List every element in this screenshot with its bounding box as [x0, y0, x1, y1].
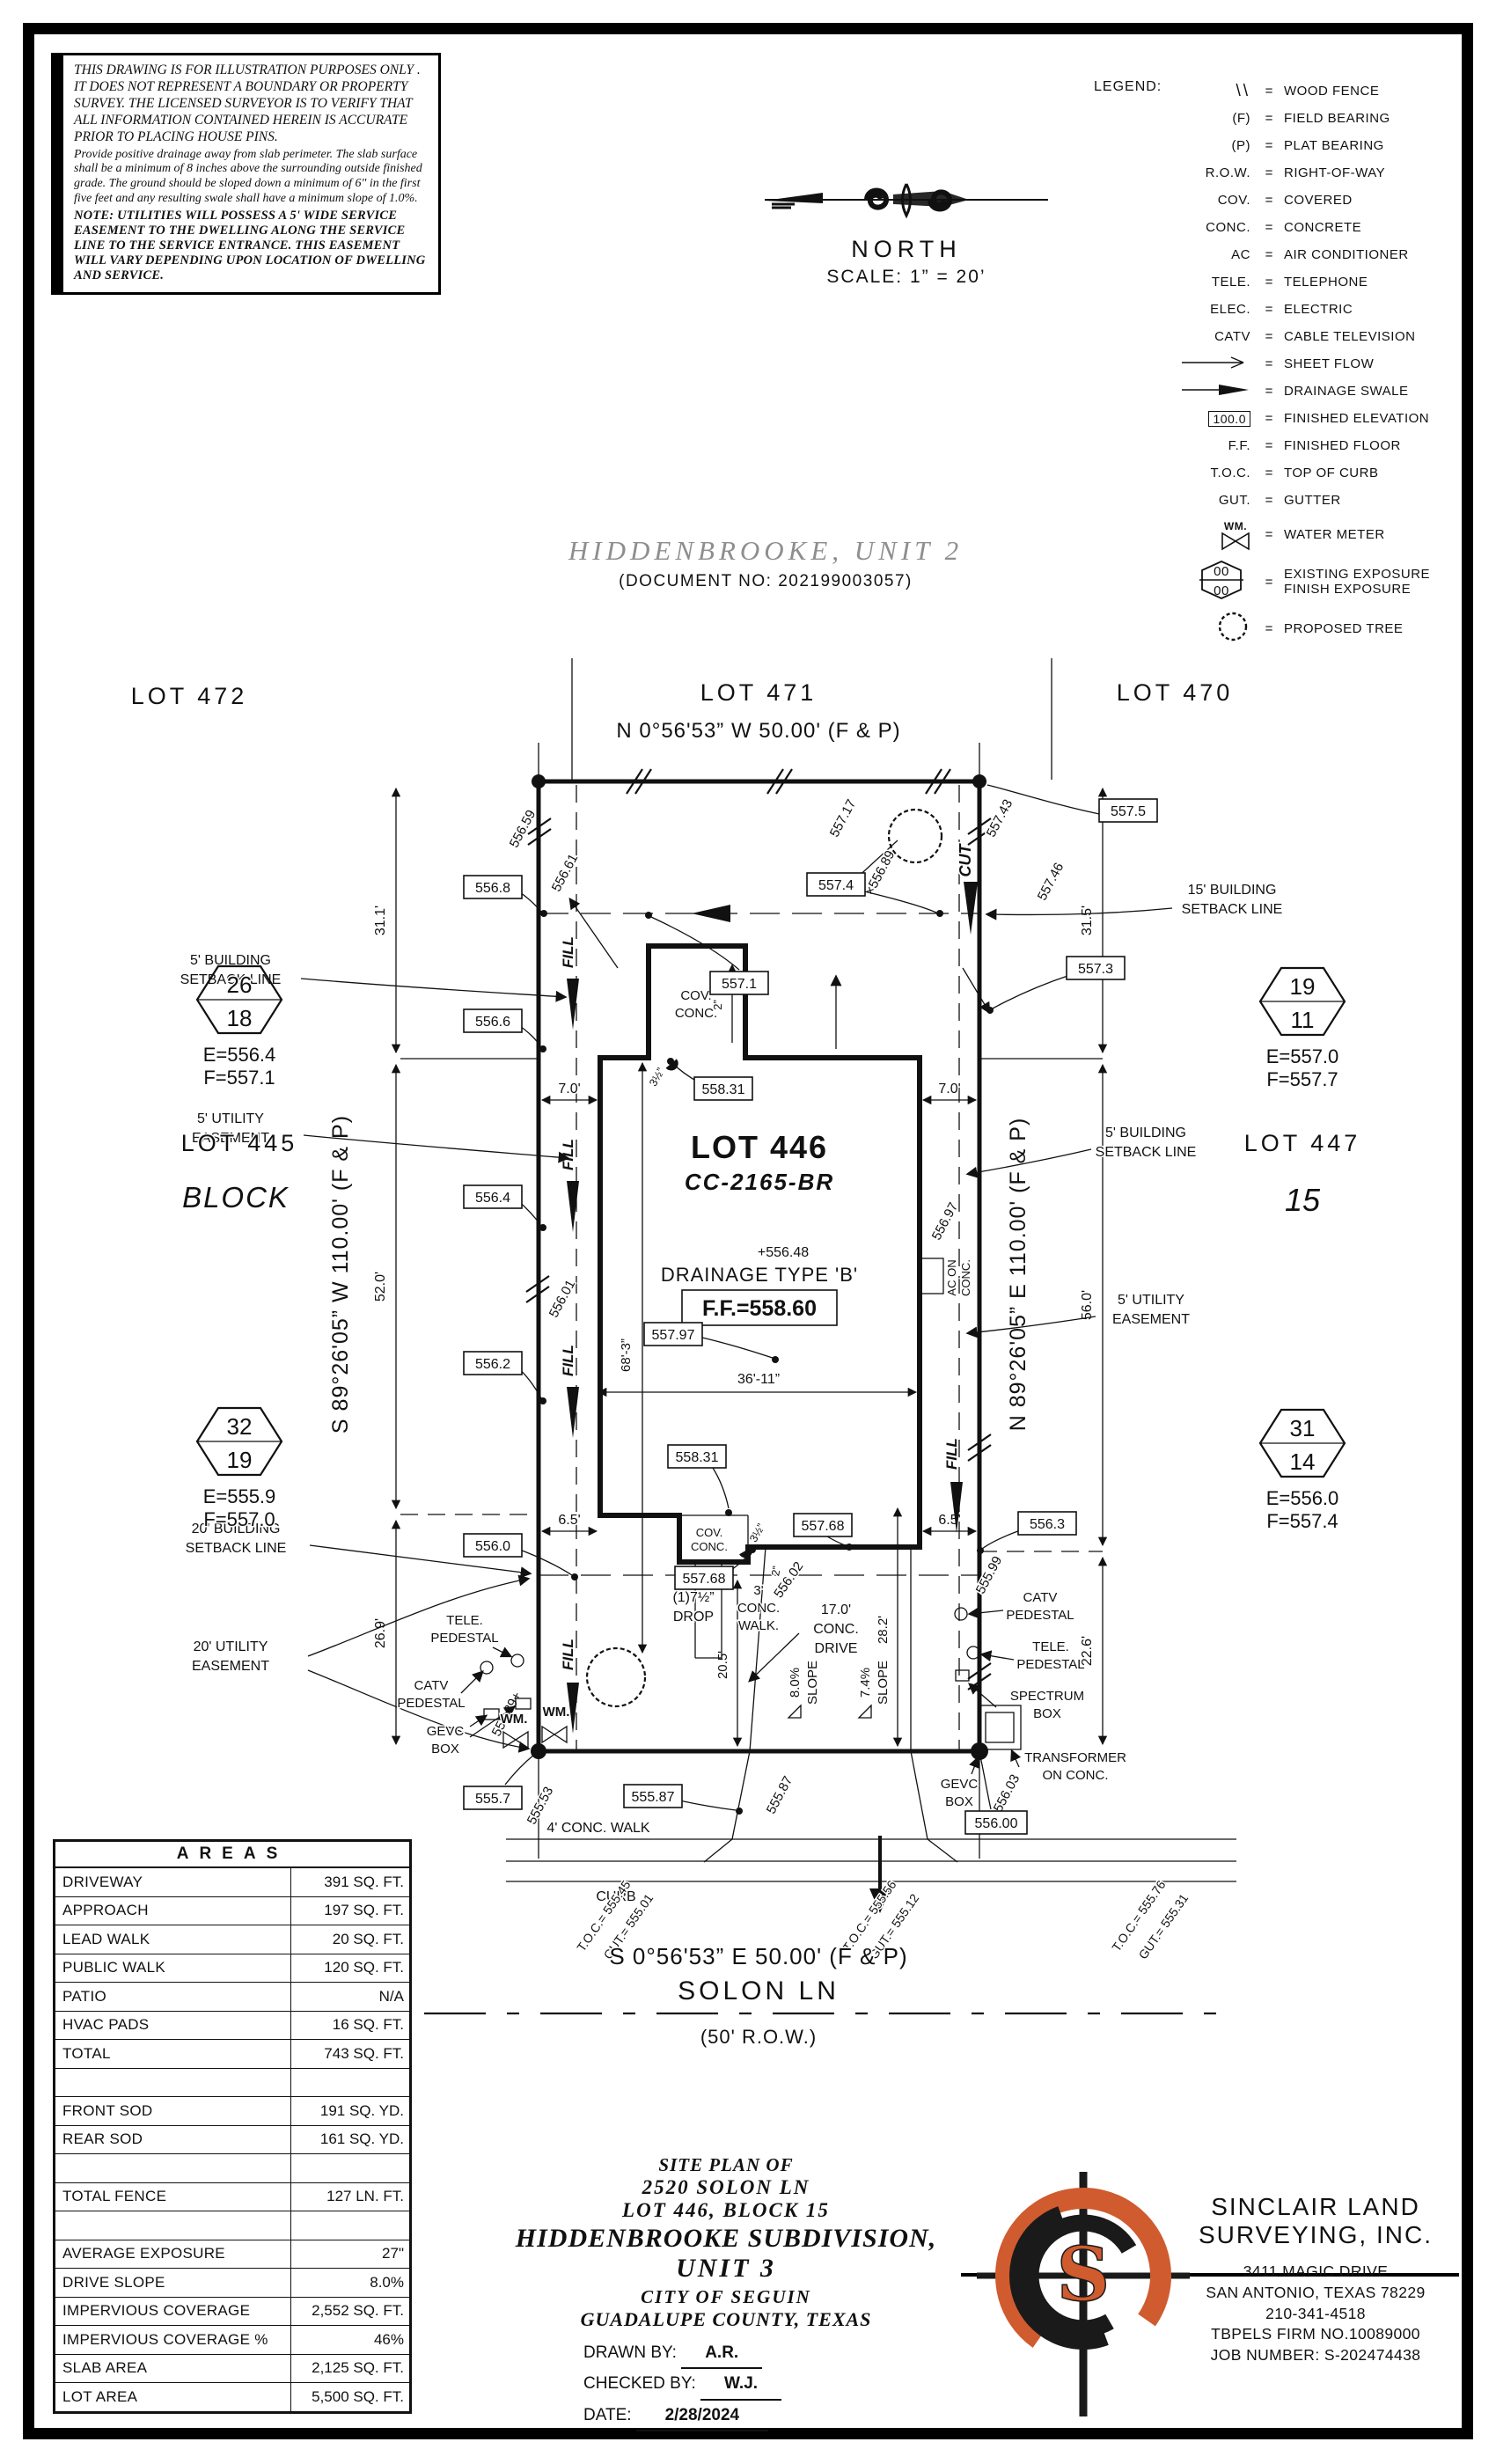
legend-item-water-meter: WM.=WATER METER — [1173, 514, 1456, 554]
table-row: DRIVE SLOPE8.0% — [55, 2269, 409, 2298]
drawn-by-row: DRAWN BY: A.R. — [583, 2338, 972, 2369]
svg-text:GEVC: GEVC — [941, 1777, 979, 1792]
svg-text:SETBACK LINE: SETBACK LINE — [1096, 1145, 1197, 1160]
lot-470-label: LOT 470 — [1117, 679, 1234, 706]
svg-text:S: S — [1057, 2231, 1111, 2318]
table-row: LOT AREA5,500 SQ. FT. — [55, 2383, 409, 2411]
finished-floor-label: F.F.=558.60 — [702, 1296, 817, 1321]
svg-text:557.5: 557.5 — [1111, 804, 1146, 819]
sheet-flow-arrows — [570, 840, 989, 1681]
date-row: DATE: 2/28/2024 — [583, 2401, 972, 2431]
table-row-blank — [55, 2211, 409, 2240]
exposure-hexagon-icon: 0000 — [1192, 555, 1250, 605]
svg-text:SETBACK LINE: SETBACK LINE — [1182, 902, 1283, 917]
proposed-tree-bottom — [587, 1648, 645, 1706]
svg-text:BOX: BOX — [1033, 1706, 1061, 1721]
svg-text:14: 14 — [1290, 1448, 1316, 1475]
drawn-by-value: A.R. — [681, 2338, 762, 2369]
note-2in-top: 2” — [711, 1000, 724, 1010]
svg-text:556.8: 556.8 — [475, 881, 510, 896]
svg-text:PEDESTAL: PEDESTAL — [1016, 1657, 1084, 1672]
water-meter-icon: WM. — [1221, 521, 1250, 551]
table-row: IMPERVIOUS COVERAGE2,552 SQ. FT. — [55, 2298, 409, 2327]
date-value: 2/28/2024 — [636, 2401, 768, 2431]
disclaimer-text: THIS DRAWING IS FOR ILLUSTRATION PURPOSE… — [74, 62, 429, 146]
row-label: (50' R.O.W.) — [700, 2026, 817, 2048]
svg-text:TELE.: TELE. — [446, 1613, 483, 1628]
table-row: HVAC PADS16 SQ. FT. — [55, 2012, 409, 2041]
titleblock-line: SITE PLAN OF — [480, 2154, 972, 2176]
table-row: IMPERVIOUS COVERAGE %46% — [55, 2326, 409, 2355]
svg-text:558.31: 558.31 — [676, 1450, 719, 1465]
lot-445-label: LOT 445 — [181, 1130, 298, 1156]
company-phone: 210-341-4518 — [1170, 2304, 1461, 2325]
svg-text:00: 00 — [1214, 583, 1229, 598]
svg-text:556.59: 556.59 — [507, 808, 539, 851]
svg-text:556.0: 556.0 — [475, 1539, 510, 1554]
svg-text:557.46: 557.46 — [1035, 861, 1067, 904]
drainage-type: DRAINAGE TYPE 'B' — [661, 1264, 858, 1286]
svg-text:557.17: 557.17 — [827, 797, 860, 840]
legend-item-drainage-swale: =DRAINAGE SWALE — [1173, 378, 1456, 405]
svg-text:558.31: 558.31 — [702, 1082, 745, 1097]
svg-text:19: 19 — [227, 1447, 253, 1473]
table-row-blank — [55, 2154, 409, 2183]
sheet-flow-icon — [1173, 356, 1254, 373]
dim-52-0: 52.0' — [373, 1272, 388, 1302]
company-firm: TBPELS FIRM NO.10089000 — [1170, 2324, 1461, 2345]
block-label: BLOCK — [182, 1181, 290, 1214]
dim-6-5-left: 6.5' — [558, 1513, 580, 1528]
checked-by-value: W.J. — [700, 2369, 781, 2400]
marker-32-19: 3219 E=555.9F=557.0 — [197, 1408, 282, 1530]
cut-label: CUT — [957, 843, 974, 877]
svg-text:WM.: WM. — [543, 1705, 570, 1720]
bearing-north: N 0°56'53” W 50.00' (F & P) — [616, 719, 900, 743]
svg-text:556.4: 556.4 — [475, 1191, 510, 1206]
company-job: JOB NUMBER: S-202474438 — [1170, 2345, 1461, 2366]
dim-7-0-left: 7.0' — [558, 1082, 580, 1096]
company-block: SINCLAIR LAND SURVEYING, INC. 3411 MAGIC… — [1170, 2193, 1461, 2366]
note-3half-top: 3½” — [647, 1066, 667, 1089]
table-row: REAR SOD161 SQ. YD. — [55, 2126, 409, 2155]
svg-text:555.7: 555.7 — [475, 1792, 510, 1807]
svg-text:557.68: 557.68 — [802, 1519, 845, 1534]
drainage-note: Provide positive drainage away from slab… — [74, 148, 429, 207]
svg-text:×556.89: ×556.89 — [862, 848, 898, 898]
note-3half-bot: 3½” — [747, 1522, 767, 1544]
legend: LEGEND: \\=WOOD FENCE (F)=FIELD BEARING … — [1094, 77, 1456, 648]
disclaimer-box: THIS DRAWING IS FOR ILLUSTRATION PURPOSE… — [51, 53, 441, 295]
legend-item-wood-fence: \\=WOOD FENCE — [1173, 77, 1456, 105]
svg-text:5' UTILITY: 5' UTILITY — [1118, 1293, 1184, 1308]
svg-text:BOX: BOX — [431, 1742, 459, 1756]
dim-7-0-right: 7.0' — [938, 1082, 960, 1096]
svg-text:5' BUILDING: 5' BUILDING — [1105, 1126, 1186, 1140]
dim-28-2: 28.2' — [876, 1616, 891, 1644]
note-2in-bot: 2” — [769, 1566, 783, 1577]
legend-item-finished-elevation: 100.0=FINISHED ELEVATION — [1173, 405, 1456, 432]
svg-text:CATV: CATV — [414, 1678, 449, 1693]
table-row: SLAB AREA2,125 SQ. FT. — [55, 2355, 409, 2384]
dim-68-3: 68'-3” — [619, 1338, 634, 1372]
company-street: 3411 MAGIC DRIVE — [1170, 2262, 1461, 2283]
svg-text:32: 32 — [227, 1413, 253, 1440]
subdivision-title: HIDDENBROOKE, UNIT 2 (DOCUMENT NO: 20219… — [458, 535, 1074, 591]
svg-text:8.0%: 8.0% — [788, 1668, 803, 1698]
legend-item-electric: ELEC.=ELECTRIC — [1173, 296, 1456, 323]
table-row: LEAD WALK20 SQ. FT. — [55, 1925, 409, 1954]
checked-by-row: CHECKED BY: W.J. — [583, 2369, 972, 2400]
svg-text:FILL: FILL — [560, 1139, 576, 1170]
table-row: FRONT SOD191 SQ. YD. — [55, 2097, 409, 2126]
dim-36-11: 36'-11” — [737, 1372, 780, 1387]
svg-text:F=557.4: F=557.4 — [1266, 1510, 1338, 1532]
svg-text:555.87: 555.87 — [764, 1774, 796, 1817]
svg-text:TELE.: TELE. — [1032, 1639, 1069, 1654]
titleblock-subdivision: HIDDENBROOKE SUBDIVISION, — [480, 2224, 972, 2254]
svg-text:WALK.: WALK. — [738, 1618, 779, 1633]
table-row-blank — [55, 2069, 409, 2098]
legend-item-sheet-flow: =SHEET FLOW — [1173, 350, 1456, 378]
svg-text:F=557.0: F=557.0 — [203, 1508, 275, 1530]
cov-conc-bot-1: COV. — [696, 1526, 723, 1539]
svg-text:E=556.4: E=556.4 — [203, 1044, 276, 1066]
svg-text:CONC.: CONC. — [737, 1601, 780, 1616]
table-row: AVERAGE EXPOSURE27" — [55, 2240, 409, 2270]
lot-471-label: LOT 471 — [700, 679, 818, 706]
lot-472-label: LOT 472 — [131, 683, 248, 709]
svg-text:556.2: 556.2 — [475, 1357, 510, 1372]
svg-text:DRIVE: DRIVE — [815, 1641, 858, 1656]
legend-item-plat-bearing: (P)=PLAT BEARING — [1173, 132, 1456, 159]
lot-446-label: LOT 446 — [691, 1129, 828, 1165]
svg-text:CONC.: CONC. — [813, 1622, 859, 1637]
dim-20-5: 20.5' — [715, 1651, 730, 1679]
wood-fence-icon: \\ — [1173, 82, 1254, 101]
plan-code: CC-2165-BR — [685, 1169, 834, 1195]
svg-text:31: 31 — [1290, 1415, 1316, 1441]
legend-item-field-bearing: (F)=FIELD BEARING — [1173, 105, 1456, 132]
svg-text:F=557.7: F=557.7 — [1266, 1068, 1338, 1090]
svg-text:7.4%: 7.4% — [858, 1668, 873, 1698]
legend-item-row: R.O.W.=RIGHT-OF-WAY — [1173, 159, 1456, 187]
north-label: NORTH — [757, 236, 1056, 263]
bearing-south: S 0°56'53” E 50.00' (F & P) — [609, 1943, 907, 1969]
swale-arrow — [692, 905, 730, 922]
svg-text:11: 11 — [1291, 1007, 1315, 1033]
cut-arrow — [964, 882, 978, 935]
svg-text:WM.: WM. — [501, 1712, 528, 1727]
svg-text:5' UTILITY: 5' UTILITY — [197, 1111, 264, 1126]
svg-text:SLOPE: SLOPE — [805, 1661, 820, 1705]
titleblock-unit: UNIT 3 — [480, 2254, 972, 2284]
table-row: DRIVEWAY391 SQ. FT. — [55, 1868, 409, 1897]
proposed-tree-icon — [1215, 609, 1250, 644]
table-row: APPROACH197 SQ. FT. — [55, 1897, 409, 1926]
legend-item-top-of-curb: T.O.C.=TOP OF CURB — [1173, 459, 1456, 487]
svg-text:TRANSFORMER: TRANSFORMER — [1024, 1750, 1126, 1765]
svg-text:SLOPE: SLOPE — [876, 1661, 891, 1705]
table-row: PATION/A — [55, 1983, 409, 2012]
company-address: 3411 MAGIC DRIVE SAN ANTONIO, TEXAS 7822… — [1170, 2262, 1461, 2365]
table-row: TOTAL FENCE127 LN. FT. — [55, 2183, 409, 2212]
svg-text:E=557.0: E=557.0 — [1266, 1045, 1339, 1067]
svg-text:557.43: 557.43 — [984, 797, 1016, 840]
svg-text:17.0': 17.0' — [821, 1602, 851, 1617]
svg-text:SPECTRUM: SPECTRUM — [1010, 1689, 1084, 1704]
legend-item-covered: COV.=COVERED — [1173, 187, 1456, 214]
svg-text:15' BUILDING: 15' BUILDING — [1188, 883, 1277, 898]
svg-text:557.68: 557.68 — [683, 1572, 726, 1587]
svg-text:SETBACK LINE: SETBACK LINE — [186, 1541, 287, 1556]
lot-447-label: LOT 447 — [1244, 1130, 1361, 1156]
svg-text:3': 3' — [753, 1583, 763, 1598]
company-name: SINCLAIR LAND SURVEYING, INC. — [1170, 2193, 1461, 2249]
svg-text:ON CONC.: ON CONC. — [1043, 1768, 1109, 1783]
svg-text:557.3: 557.3 — [1078, 962, 1113, 977]
street-name: SOLON LN — [678, 1976, 840, 2006]
north-block: NORTH SCALE: 1” = 20’ — [757, 180, 1056, 288]
dim-56-0: 56.0' — [1080, 1290, 1095, 1320]
scale-label: SCALE: 1” = 20’ — [757, 267, 1056, 288]
svg-text:FILL: FILL — [560, 1345, 576, 1376]
dim-26-9: 26.9' — [373, 1618, 388, 1648]
legend-item-proposed-tree: =PROPOSED TREE — [1173, 609, 1456, 648]
walk-label: 4' CONC. WALK — [546, 1821, 649, 1836]
svg-text:555.87: 555.87 — [632, 1790, 675, 1805]
legend-title: LEGEND: — [1094, 79, 1162, 95]
svg-text:PEDESTAL: PEDESTAL — [1006, 1608, 1074, 1623]
svg-text:19: 19 — [1290, 973, 1316, 1000]
ac-on-label: AC ON — [945, 1259, 958, 1295]
svg-text:00: 00 — [1214, 564, 1229, 579]
sinclair-logo: S — [975, 2167, 1192, 2422]
proposed-tree-top — [889, 810, 942, 862]
dim-31-5: 31.5' — [1080, 906, 1095, 935]
legend-item-ac: AC=AIR CONDITIONER — [1173, 241, 1456, 268]
ac-conc-label: CONC. — [959, 1259, 972, 1296]
svg-text:556.00: 556.00 — [975, 1816, 1018, 1831]
titleblock-city: CITY OF SEGUIN — [480, 2286, 972, 2308]
svg-text:E=556.0: E=556.0 — [1266, 1487, 1339, 1509]
svg-text:556.6: 556.6 — [475, 1015, 510, 1030]
spot-center: +556.48 — [758, 1245, 809, 1260]
svg-text:556.02: 556.02 — [771, 1559, 806, 1601]
street-annotations: 4' CONC. WALK CURB T.O.C.= 555.45 GUT.= … — [308, 1821, 1223, 2048]
svg-text:E=555.9: E=555.9 — [203, 1485, 276, 1507]
subdivision-name: HIDDENBROOKE, UNIT 2 — [458, 535, 1074, 567]
svg-text:PEDESTAL: PEDESTAL — [430, 1631, 498, 1646]
table-row: TOTAL743 SQ. FT. — [55, 2040, 409, 2069]
svg-text:557.1: 557.1 — [722, 977, 757, 992]
legend-item-concrete: CONC.=CONCRETE — [1173, 214, 1456, 241]
svg-text:556.3: 556.3 — [1030, 1517, 1065, 1532]
block-15-label: 15 — [1285, 1182, 1321, 1218]
cov-conc-bot-2: CONC. — [691, 1540, 728, 1553]
legend-item-gutter: GUT.=GUTTER — [1173, 487, 1456, 514]
svg-text:PEDESTAL: PEDESTAL — [397, 1696, 465, 1711]
svg-text:BOX: BOX — [945, 1794, 973, 1809]
marker-19-11: 1911 E=557.0F=557.7 — [1260, 968, 1345, 1090]
svg-text:556.03: 556.03 — [991, 1772, 1023, 1815]
areas-title: AREAS — [55, 1842, 409, 1868]
svg-text:556.01: 556.01 — [546, 1278, 579, 1321]
legend-item-telephone: TELE.=TELEPHONE — [1173, 268, 1456, 296]
marker-31-14: 3114 E=556.0F=557.4 — [1260, 1410, 1345, 1532]
table-row: PUBLIC WALK120 SQ. FT. — [55, 1954, 409, 1984]
legend-item-finished-floor: F.F.=FINISHED FLOOR — [1173, 432, 1456, 459]
svg-text:18: 18 — [227, 1005, 253, 1031]
svg-text:20' UTILITY: 20' UTILITY — [194, 1639, 268, 1654]
svg-text:557.97: 557.97 — [652, 1328, 695, 1343]
svg-text:557.4: 557.4 — [818, 878, 854, 893]
bearing-west: S 89°26'05” W 110.00' (F & P) — [328, 1115, 353, 1434]
north-arrow-icon — [761, 180, 1052, 219]
svg-text:26: 26 — [227, 972, 253, 998]
finished-elevation-icon: 100.0 — [1208, 411, 1250, 427]
cov-conc-top-1: COV. — [680, 988, 711, 1003]
svg-text:(1)7½”: (1)7½” — [672, 1590, 714, 1605]
utilities-note: NOTE: UTILITIES WILL POSSESS A 5' WIDE S… — [74, 209, 429, 284]
svg-text:FILL: FILL — [560, 1639, 576, 1670]
svg-text:FILL: FILL — [560, 936, 576, 968]
areas-table: AREAS DRIVEWAY391 SQ. FT. APPROACH197 SQ… — [53, 1839, 412, 2414]
titleblock-address: 2520 SOLON LN — [480, 2176, 972, 2199]
subdivision-doc: (DOCUMENT NO: 202199003057) — [458, 572, 1074, 591]
svg-text:CATV: CATV — [1023, 1590, 1058, 1605]
svg-text:GEVC: GEVC — [427, 1724, 465, 1739]
svg-text:FILL: FILL — [943, 1438, 960, 1470]
company-city: SAN ANTONIO, TEXAS 78229 — [1170, 2283, 1461, 2304]
svg-text:DROP: DROP — [673, 1610, 714, 1624]
svg-text:EASEMENT: EASEMENT — [192, 1659, 269, 1674]
legend-item-exposure: 0000=EXISTING EXPOSUREFINISH EXPOSURE — [1173, 554, 1456, 609]
drainage-swale-icon — [1173, 383, 1254, 400]
svg-text:556.97: 556.97 — [929, 1200, 962, 1243]
site-plan-page: THIS DRAWING IS FOR ILLUSTRATION PURPOSE… — [0, 0, 1496, 2464]
svg-text:F=557.1: F=557.1 — [203, 1067, 275, 1089]
legend-item-catv: CATV=CABLE TELEVISION — [1173, 323, 1456, 350]
titleblock-lot: LOT 446, BLOCK 15 — [480, 2199, 972, 2222]
site-titleblock: SITE PLAN OF 2520 SOLON LN LOT 446, BLOC… — [480, 2154, 972, 2431]
titleblock-county: GUADALUPE COUNTY, TEXAS — [480, 2308, 972, 2331]
svg-text:EASEMENT: EASEMENT — [1112, 1312, 1190, 1327]
dim-31-1: 31.1' — [373, 906, 388, 935]
